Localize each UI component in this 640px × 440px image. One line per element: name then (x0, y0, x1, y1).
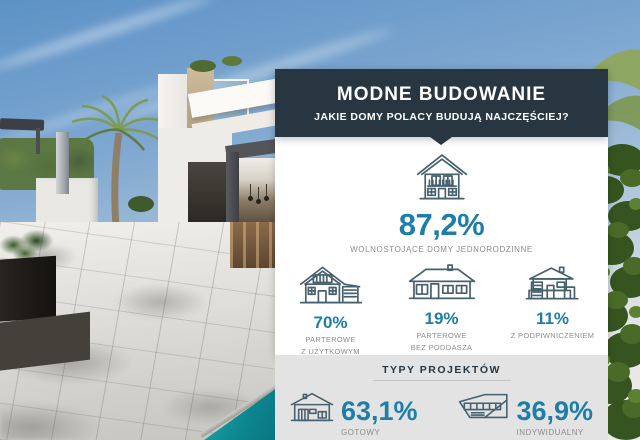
breakdown-value: 19% (386, 310, 497, 327)
project-type-stat: 63,1% GOTOWY (341, 398, 418, 437)
pendant-light (264, 196, 269, 201)
header-pointer-triangle (430, 137, 452, 145)
main-stat-value: 87,2% (275, 209, 608, 240)
main-stat: 87,2% WOLNOSTOJĄCE DOMY JEDNORODZINNE (275, 137, 608, 254)
street-lamp-pole (36, 128, 40, 154)
main-stat-label: WOLNOSTOJĄCE DOMY JEDNORODZINNE (275, 245, 608, 254)
breakdown-value: 70% (275, 314, 386, 331)
infographic-header: MODNE BUDOWANIE JAKIE DOMY POLACY BUDUJĄ… (275, 69, 608, 137)
roof-plant (190, 60, 216, 72)
attic-house-icon (299, 264, 363, 306)
project-type-ready: 63,1% GOTOWY (290, 390, 418, 437)
infographic-title: MODNE BUDOWANIE (337, 84, 546, 106)
black-planter (0, 256, 56, 322)
breakdown-label: Z PODPIWNICZENIEM (497, 330, 608, 342)
basement-house-icon (523, 264, 583, 302)
project-type-label: GOTOWY (341, 428, 418, 437)
roof-plant (222, 56, 242, 66)
individual-project-house-icon (458, 392, 510, 424)
breakdown-label: PARTEROWE BEZ PODDASZA (386, 330, 497, 354)
project-type-stat: 36,9% INDYWIDUALNY (517, 398, 594, 437)
infographic-subtitle: JAKIE DOMY POLACY BUDUJĄ NAJCZĘŚCIEJ? (314, 111, 569, 123)
project-type-individual: 36,9% INDYWIDUALNY (458, 390, 594, 437)
project-type-value: 63,1% (341, 398, 418, 425)
breakdown-value: 11% (497, 310, 608, 327)
infographic-body: 87,2% WOLNOSTOJĄCE DOMY JEDNORODZINNE (275, 137, 608, 355)
project-types-row: 63,1% GOTOWY 36,9% INDYWIDUALNY (275, 390, 608, 437)
pendant-light (248, 196, 253, 201)
pendant-light (256, 199, 261, 204)
two-story-house-icon (415, 150, 469, 202)
infographic-page: MODNE BUDOWANIE JAKIE DOMY POLACY BUDUJĄ… (0, 0, 640, 440)
project-type-value: 36,9% (517, 398, 594, 425)
window-glazing (188, 162, 226, 226)
window-frame-post (226, 152, 239, 230)
project-types-section: TYPY PROJEKTÓW 63,1% GOTOWY (275, 355, 608, 440)
garden-plant (128, 196, 154, 212)
bungalow-house-icon (408, 264, 476, 302)
project-type-label: INDYWIDUALNY (517, 428, 594, 437)
heading-divider (373, 380, 511, 381)
project-types-heading: TYPY PROJEKTÓW (275, 355, 608, 376)
ready-project-house-icon (290, 390, 334, 424)
